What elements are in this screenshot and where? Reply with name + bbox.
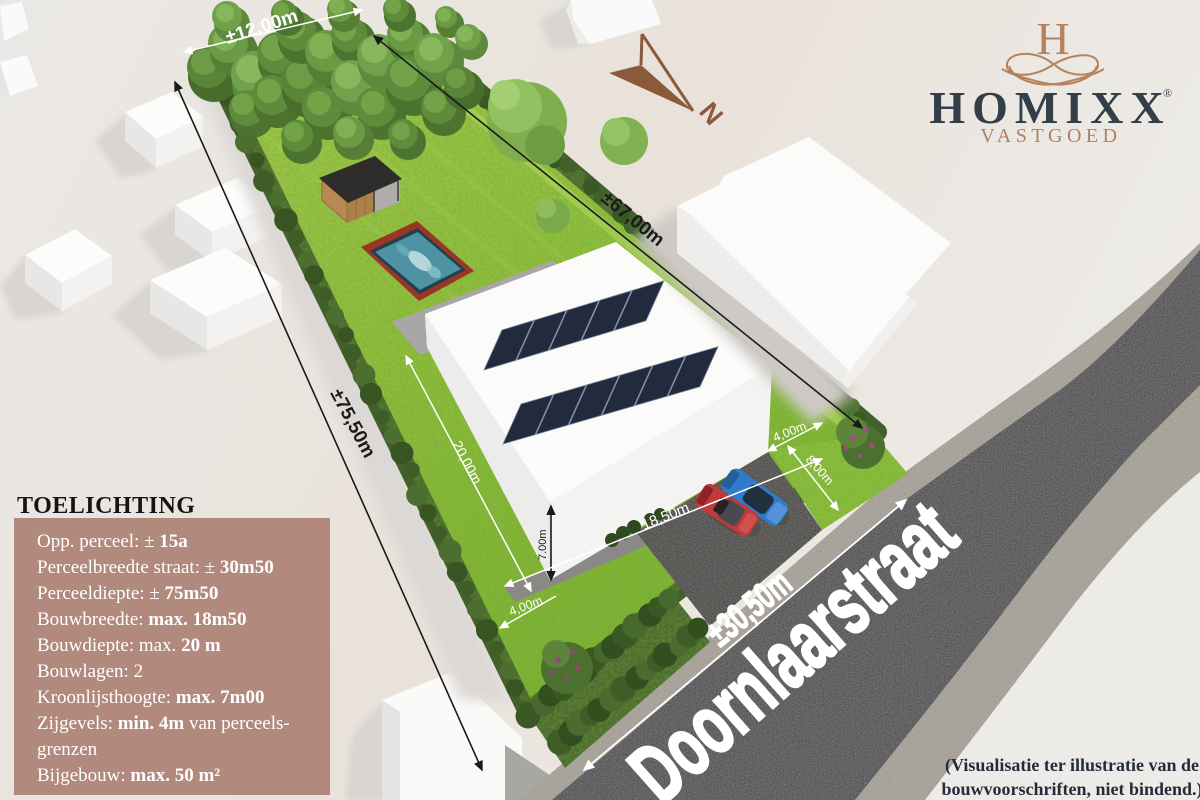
- svg-text:Perceeldiepte: ± 75m50: Perceeldiepte: ± 75m50: [37, 583, 218, 604]
- svg-text:Bouwlagen: 2: Bouwlagen: 2: [37, 661, 143, 682]
- svg-text:VASTGOED: VASTGOED: [980, 125, 1121, 147]
- svg-text:Bouwbreedte: max. 18m50: Bouwbreedte: max. 18m50: [37, 609, 246, 630]
- svg-text:7.00m: 7.00m: [537, 529, 549, 560]
- svg-text:Bouwdiepte: max. 20 m: Bouwdiepte: max. 20 m: [37, 635, 221, 656]
- svg-text:bouwvoorschriften, niet binden: bouwvoorschriften, niet bindend.): [941, 779, 1200, 800]
- svg-text:®: ®: [1163, 86, 1172, 100]
- svg-text:Zijgevels: min. 4m van perceel: Zijgevels: min. 4m van perceels-: [37, 713, 290, 734]
- svg-text:grenzen: grenzen: [37, 739, 98, 760]
- svg-text:(Visualisatie ter illustratie: (Visualisatie ter illustratie van de: [945, 755, 1199, 776]
- svg-text:Kroonlijsthoogte: max. 7m00: Kroonlijsthoogte: max. 7m00: [37, 687, 264, 708]
- svg-text:Opp. perceel: ± 15a: Opp. perceel: ± 15a: [37, 531, 188, 552]
- svg-text:TOELICHTING: TOELICHTING: [17, 493, 195, 519]
- svg-text:Bijgebouw: max. 50 m²: Bijgebouw: max. 50 m²: [37, 765, 220, 786]
- svg-text:Perceelbreedte straat: ± 30m50: Perceelbreedte straat: ± 30m50: [37, 557, 274, 578]
